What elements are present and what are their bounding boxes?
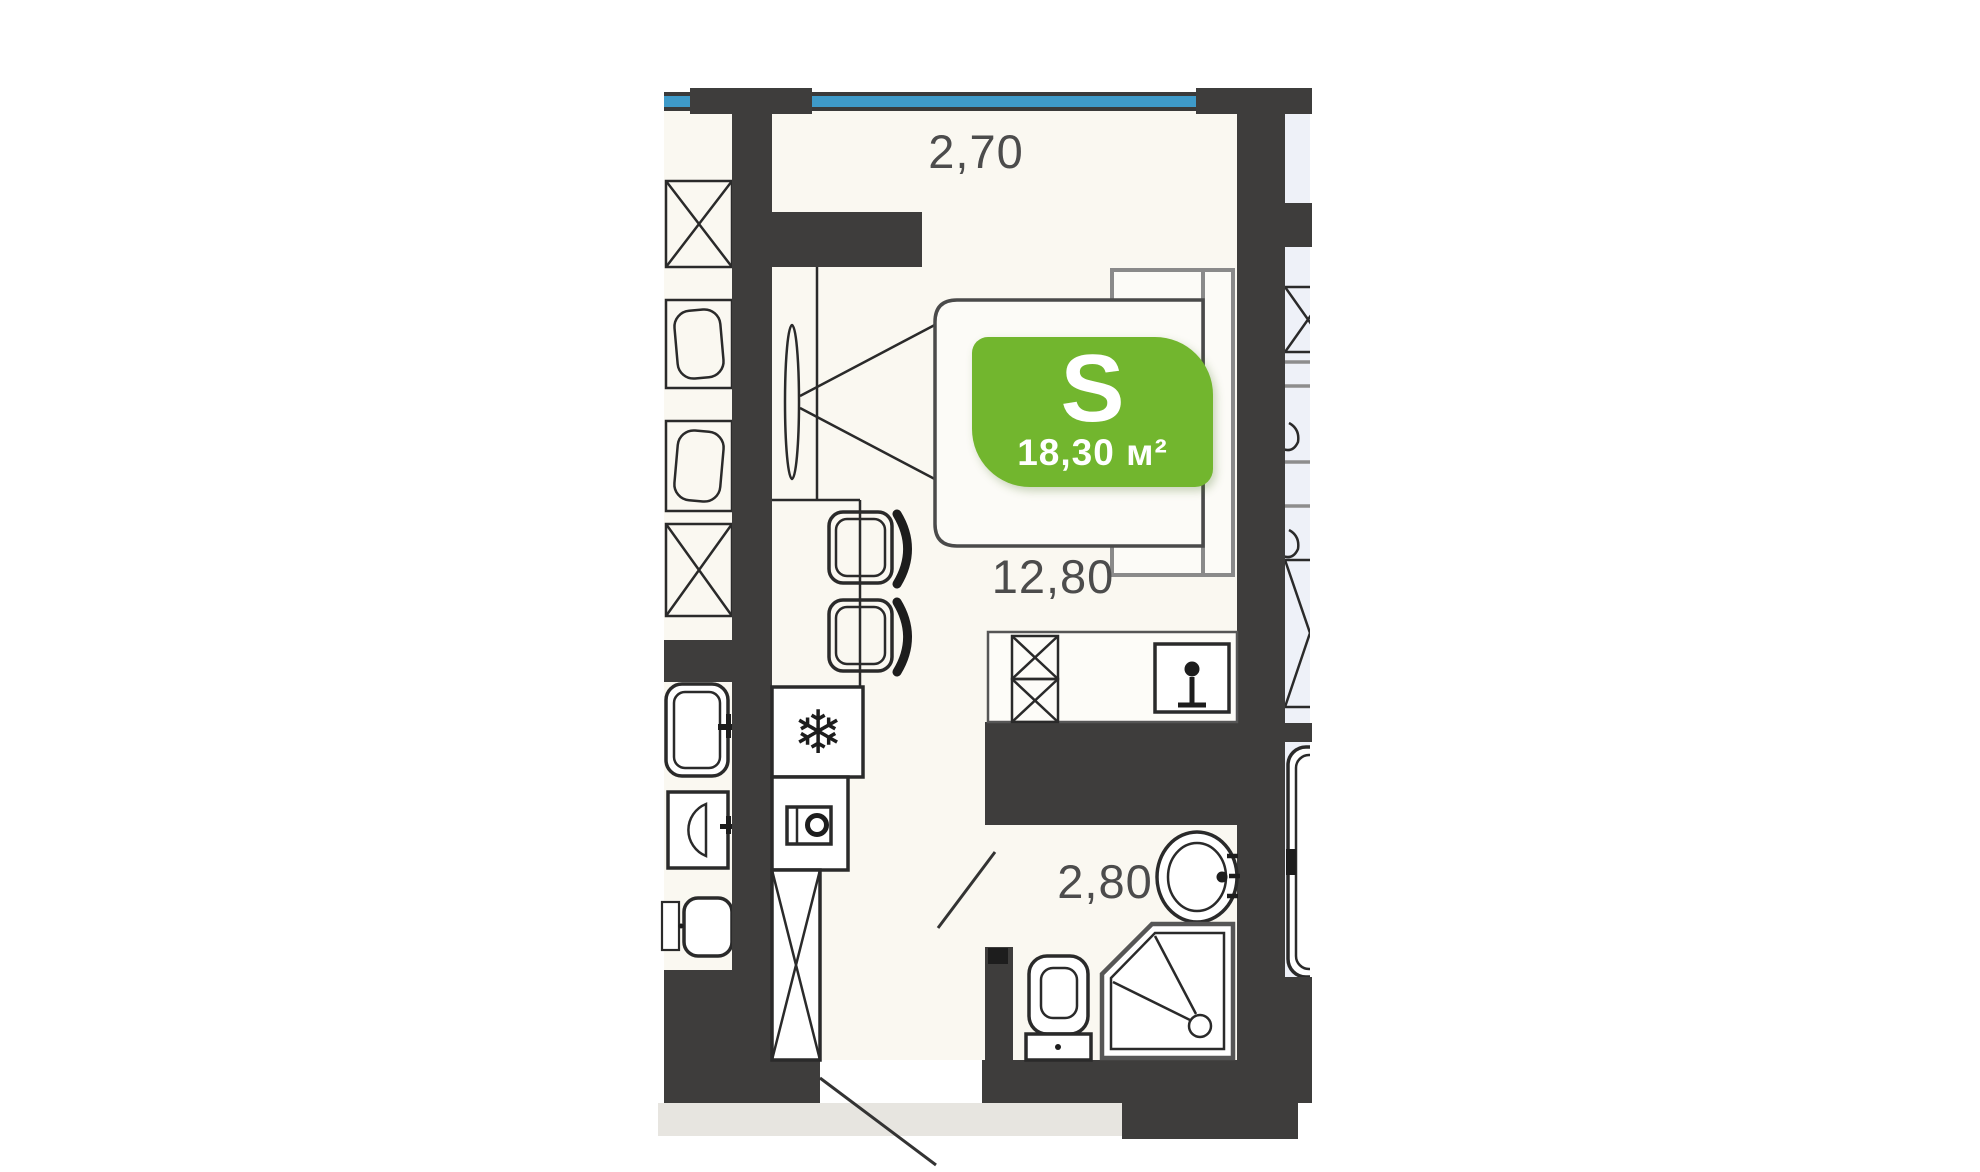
dimension-room: 12,80 (978, 549, 1128, 604)
wall-bottom-step (1122, 1103, 1298, 1139)
door-hinge-mark (988, 948, 1008, 964)
dimension-bathroom: 2,80 (1046, 854, 1164, 909)
washbasin-icon (1157, 832, 1240, 922)
wall-bottom-left (664, 1060, 820, 1103)
toilet-icon (1026, 956, 1091, 1060)
wall-left (732, 106, 772, 1103)
wall-right (1237, 106, 1285, 1103)
bathtub-icon (1286, 747, 1348, 977)
kitchen-sink-icon (1155, 644, 1229, 712)
fridge-snowflake-icon: ❄ (793, 698, 843, 768)
washing-machine-icon (772, 777, 848, 870)
wall-bottom-right (982, 1060, 1298, 1103)
wardrobe-icon (772, 870, 820, 1060)
wall-right-strip-stub (1285, 723, 1312, 742)
area-badge-value: 18,30 м² (972, 433, 1213, 473)
dimension-top-width: 2,70 (916, 124, 1036, 179)
wall-right-strip-bottom (1285, 977, 1312, 1103)
washbasin-icon (668, 792, 733, 868)
wall-niche-arm (772, 212, 922, 267)
kitchen-counter (988, 632, 1237, 722)
wall-left-strip-mid (664, 640, 732, 682)
toilet-icon (662, 898, 732, 956)
fridge-icon: ❄ (772, 687, 863, 777)
area-badge: S 18,30 м² (972, 337, 1213, 487)
wall-bathroom-top (985, 722, 1285, 825)
floor-plan: ❄ (0, 0, 1980, 1172)
wall-right-strip-stub (1285, 203, 1312, 247)
area-badge-letter: S (972, 341, 1213, 437)
bathtub-icon (666, 684, 734, 776)
